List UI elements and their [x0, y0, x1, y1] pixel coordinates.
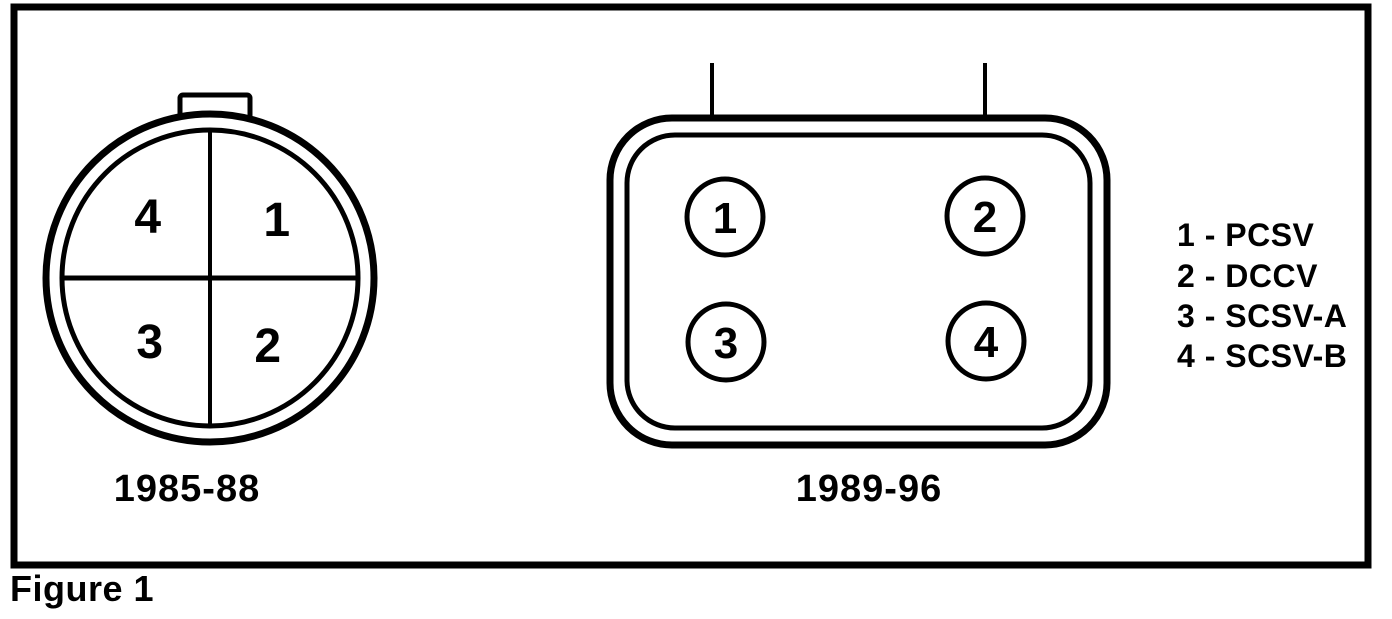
legend-item-dccv: 2 - DCCV [1177, 258, 1318, 294]
round-pin-top-right: 1 [263, 194, 290, 247]
round-pin-bottom-right: 2 [254, 320, 281, 373]
rect-pin-top-left: 1 [713, 194, 737, 243]
pin-legend: 1 - PCSV 2 - DCCV 3 - SCSV-A 4 - SCSV-B [1177, 217, 1347, 374]
legend-item-scsv-b: 4 - SCSV-B [1177, 338, 1347, 374]
round-connector-year-label: 1985-88 [114, 468, 260, 510]
round-connector-1985-88: 4 1 3 2 1985-88 [46, 95, 374, 510]
rect-connector-year-label: 1989-96 [796, 468, 942, 510]
legend-item-scsv-a: 3 - SCSV-A [1177, 298, 1347, 334]
legend-item-pcsv: 1 - PCSV [1177, 217, 1315, 253]
connector-outer-shell [610, 118, 1107, 445]
rect-pin-top-right: 2 [973, 193, 997, 242]
pinout-diagram: 4 1 3 2 1985-88 1 2 3 4 1989-96 1 - PCSV… [0, 0, 1392, 614]
figure-caption: Figure 1 [10, 568, 154, 609]
rect-pin-bottom-left: 3 [714, 319, 738, 368]
rect-pin-bottom-right: 4 [974, 318, 999, 367]
rect-connector-1989-96: 1 2 3 4 1989-96 [610, 63, 1107, 510]
round-pin-top-left: 4 [134, 191, 161, 244]
round-pin-bottom-left: 3 [136, 316, 163, 369]
